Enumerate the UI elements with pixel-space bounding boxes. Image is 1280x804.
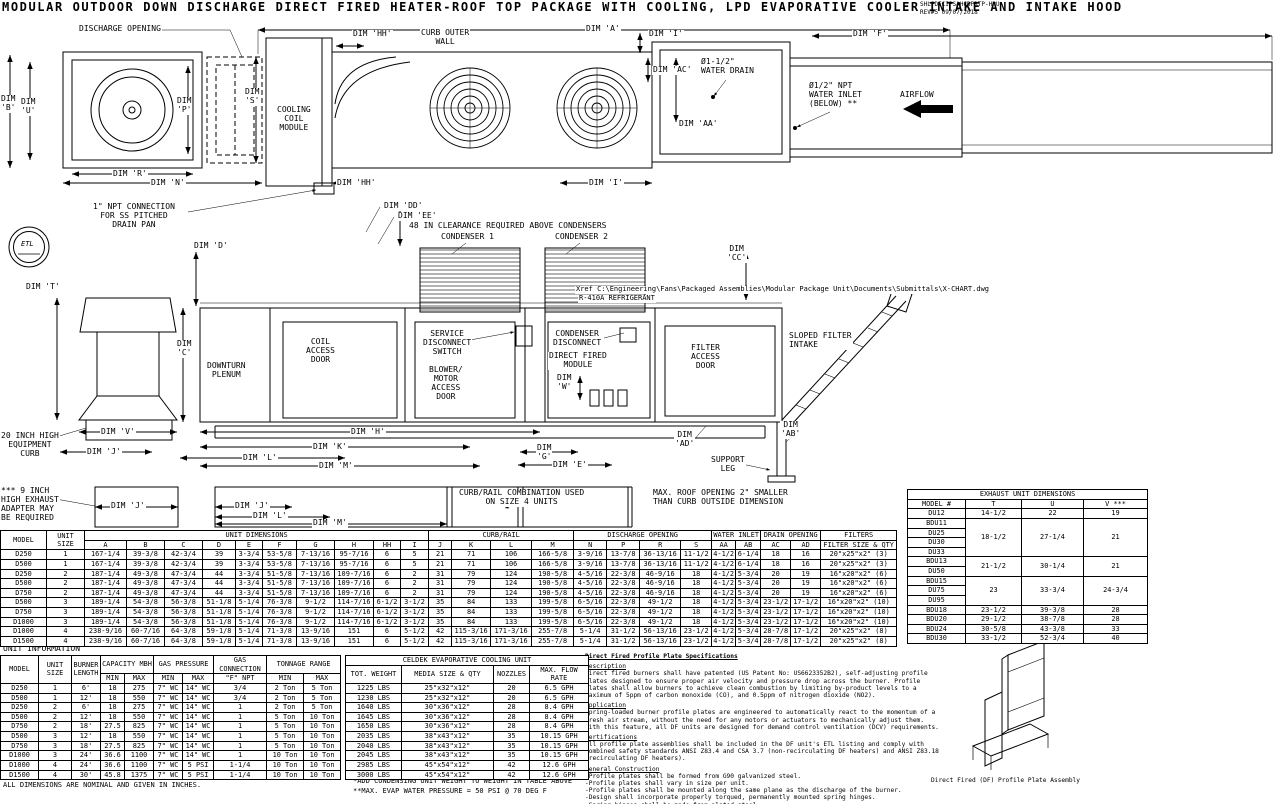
table-group-header-row: MODEL UNIT SIZE UNIT DIMENSIONS CURB/RAI… bbox=[1, 531, 897, 541]
exhaust-adapter-note: *** 9 INCH HIGH EXHAUST ADAPTER MAY BE R… bbox=[0, 487, 60, 523]
table-row: BDU2430-5/843-3/833 bbox=[908, 624, 1148, 634]
unit-information-table: MODEL UNIT SIZE BURNER LENGTH CAPACITY M… bbox=[0, 655, 341, 780]
certifications-heading: Certifications bbox=[585, 734, 939, 741]
dim-r-label: DIM 'R' bbox=[112, 170, 148, 179]
description-body: Direct fired burners shall have patented… bbox=[585, 670, 939, 699]
table-row: D7503189-1/454-3/856-3/851-1/85-1/476-3/… bbox=[1, 608, 897, 618]
table-row: 2035 LBS38"x43"x12"3510.15 GPH bbox=[346, 732, 589, 742]
downturn-plenum-label: DOWNTURN PLENUM bbox=[206, 362, 247, 380]
table-row: D1000424'36.611007" WC5 PSI1-1/410 Ton10… bbox=[1, 760, 341, 770]
dim-ee-label: DIM 'EE' bbox=[397, 212, 438, 221]
dim-e-label: DIM 'E' bbox=[552, 461, 588, 470]
coil-access-door-label: COIL ACCESS DOOR bbox=[305, 338, 336, 365]
dim-s-label: DIM 'S' bbox=[244, 88, 260, 106]
discharge-opening-label: DISCHARGE OPENING bbox=[78, 25, 162, 34]
celdek-cooling-table: CELDEK EVAPORATIVE COOLING UNIT TOT. WEI… bbox=[345, 655, 589, 780]
table-row: D5001167-1/439-3/842-3/4393-3/453-5/87-1… bbox=[1, 559, 897, 569]
dim-a-label: DIM 'A' bbox=[585, 25, 621, 34]
table-row: D750218'27.58257" WC14" WC15 Ton10 Ton bbox=[1, 722, 341, 732]
dim-h-label: DIM 'H' bbox=[350, 428, 386, 437]
support-leg-label: SUPPORT LEG bbox=[710, 456, 746, 474]
table-row: 1650 LBS30"x36"x12"288.4 GPH bbox=[346, 722, 589, 732]
water-inlet-label: Ø1/2" NPT WATER INLET (BELOW) ** bbox=[808, 82, 863, 109]
table-row: D10004238-9/1660-7/1664-3/859-1/85-1/471… bbox=[1, 627, 897, 637]
dim-n-label: DIM 'N' bbox=[150, 179, 186, 188]
table-row: D1500430'45.813757" WC5 PSI1-1/410 Ton10… bbox=[1, 770, 341, 780]
table-row: 2045 LBS38"x43"x12"3510.15 GPH bbox=[346, 751, 589, 761]
curb-rail-note: CURB/RAIL COMBINATION USED ON SIZE 4 UNI… bbox=[458, 489, 585, 507]
dim-hh-top-label: DIM 'HH' bbox=[352, 30, 393, 39]
application-heading: Application bbox=[585, 702, 939, 709]
table-row: D15004238-9/1660-7/1664-3/859-1/85-1/471… bbox=[1, 636, 897, 646]
service-disconnect-label: SERVICE DISCONNECT SWITCH bbox=[422, 330, 472, 357]
table-row: BDU3033-1/252-3/440 bbox=[908, 634, 1148, 644]
revision-block: SHLPDECIPSAHCDPRTP-HPU REV#5 09/07/2018 bbox=[920, 1, 999, 17]
dim-cc-label: DIM 'CC' bbox=[726, 245, 747, 263]
table-row: D25016'182757" WC14" WC3/42 Ton5 Ton bbox=[1, 683, 341, 693]
table-row: 2040 LBS38"x43"x12"3510.15 GPH bbox=[346, 741, 589, 751]
dim-dd-label: DIM 'DD' bbox=[383, 202, 424, 211]
certifications-body: All profile plate assemblies shall be in… bbox=[585, 741, 939, 763]
table-row: D1000324'36.611007" WC14" WC110 Ton10 To… bbox=[1, 751, 341, 761]
table-row: D5002187-1/449-3/847-3/4443-3/451-5/87-1… bbox=[1, 579, 897, 589]
blower-motor-door-label: BLOWER/ MOTOR ACCESS DOOR bbox=[428, 366, 464, 402]
table-row: 1640 LBS30"x36"x12"288.4 GPH bbox=[346, 703, 589, 713]
etl-listed-mark: ETL bbox=[20, 241, 35, 249]
dim-i-bottom-label: DIM 'I' bbox=[588, 179, 624, 188]
dim-k-label: DIM 'K' bbox=[312, 443, 348, 452]
dim-aa-label: DIM 'AA' bbox=[678, 120, 719, 129]
exhaust-table-title: EXHAUST UNIT DIMENSIONS bbox=[908, 490, 1148, 500]
dim-u-label: DIM 'U' bbox=[20, 98, 36, 116]
table-row: 3000 LBS45"x54"x12"4212.6 GPH bbox=[346, 770, 589, 780]
direct-fired-module-label: DIRECT FIRED MODULE bbox=[548, 352, 608, 370]
condenser-disconnect-label: CONDENSER DISCONNECT bbox=[552, 330, 602, 348]
table-row: D500212'185507" WC14" WC15 Ton10 Ton bbox=[1, 712, 341, 722]
table-row: D5003189-1/454-3/856-3/851-1/85-1/476-3/… bbox=[1, 598, 897, 608]
dim-p-label: DIM 'P' bbox=[176, 97, 192, 115]
table-header-row: MODEL # T U V *** bbox=[908, 499, 1148, 509]
dim-b-label: DIM 'B' bbox=[0, 95, 16, 113]
refrigerant-note: R-410A REFRIGERANT bbox=[578, 295, 656, 303]
drawing-canvas: MODULAR OUTDOOR DOWN DISCHARGE DIRECT FI… bbox=[0, 0, 1280, 804]
drawing-number: SHLPDECIPSAHCDPRTP-HPU bbox=[920, 1, 999, 9]
dim-ab-label: DIM 'AB' bbox=[780, 421, 801, 439]
table-row: BDU2029-1/238-7/828 bbox=[908, 615, 1148, 625]
dim-ad-label: DIM 'AD' bbox=[674, 431, 695, 449]
table-title-row: EXHAUST UNIT DIMENSIONS bbox=[908, 490, 1148, 500]
table-row: BDU152333-3/424-3/4 bbox=[908, 576, 1148, 586]
dim-f-label: DIM 'F' bbox=[852, 30, 888, 39]
table-row: D500112'185507" WC14" WC3/42 Ton5 Ton bbox=[1, 693, 341, 703]
table-row: 1230 LBS25"x32"x12"206.5 GPH bbox=[346, 693, 589, 703]
dim-w-label: DIM 'W' bbox=[556, 374, 572, 392]
condenser-2-label: CONDENSER 2 bbox=[554, 233, 609, 242]
clearance-note: 48 IN CLEARANCE REQUIRED ABOVE CONDENSER… bbox=[408, 222, 607, 231]
dim-l-curb-label: DIM 'L' bbox=[252, 512, 288, 521]
exhaust-unit-dimensions-table: EXHAUST UNIT DIMENSIONS MODEL # T U V **… bbox=[907, 489, 1148, 644]
table-row: D500312'185507" WC14" WC15 Ton10 Ton bbox=[1, 732, 341, 742]
dim-v-label: DIM 'V' bbox=[100, 428, 136, 437]
water-drain-label: Ø1-1/2" WATER DRAIN bbox=[700, 58, 755, 76]
dim-j-label: DIM 'J' bbox=[86, 448, 122, 457]
dim-j-curb1-label: DIM 'J' bbox=[110, 502, 146, 511]
table-title-row: CELDEK EVAPORATIVE COOLING UNIT bbox=[346, 656, 589, 666]
description-heading: Description bbox=[585, 663, 939, 670]
table-row: D2502187-1/449-3/847-3/4443-3/451-5/87-1… bbox=[1, 569, 897, 579]
dim-m-curb-label: DIM 'M' bbox=[312, 519, 348, 528]
construction-heading: General Construction bbox=[585, 766, 939, 773]
dim-t-label: DIM 'T' bbox=[25, 283, 61, 292]
airflow-label: AIRFLOW bbox=[899, 91, 935, 100]
dimensions-footnote: ALL DIMENSIONS ARE NOMINAL AND GIVEN IN … bbox=[2, 782, 202, 790]
dim-i-top-label: DIM 'I' bbox=[648, 30, 684, 39]
profile-plate-caption: Direct Fired (DF) Profile Plate Assembly bbox=[930, 778, 1081, 785]
curb-outer-wall-label: CURB OUTER WALL bbox=[420, 29, 470, 47]
dim-hh-bottom-label: DIM 'HH' bbox=[336, 179, 377, 188]
table-header-row: TOT. WEIGHT MEDIA SIZE & QTY NOZZLES MAX… bbox=[346, 665, 589, 683]
table-row: 2985 LBS45"x54"x12"4212.6 GPH bbox=[346, 760, 589, 770]
dim-ac-label: DIM 'AC' bbox=[652, 66, 693, 75]
table-row: D2501167-1/439-3/842-3/4393-3/453-5/87-1… bbox=[1, 550, 897, 560]
roof-opening-note: MAX. ROOF OPENING 2" SMALLER THAN CURB O… bbox=[652, 489, 789, 507]
table-group-header-row: MODEL UNIT SIZE BURNER LENGTH CAPACITY M… bbox=[1, 656, 341, 674]
table-row: D10003189-1/454-3/856-3/851-1/85-1/476-3… bbox=[1, 617, 897, 627]
table-row: D7502187-1/449-3/847-3/4443-3/451-5/87-1… bbox=[1, 588, 897, 598]
celdek-table-title: CELDEK EVAPORATIVE COOLING UNIT bbox=[346, 656, 589, 666]
filter-access-door-label: FILTER ACCESS DOOR bbox=[690, 344, 721, 371]
table-row: BDU1118-1/227-1/421 bbox=[908, 518, 1148, 528]
table-row: 1645 LBS30"x36"x12"288.4 GPH bbox=[346, 712, 589, 722]
cooling-coil-module-label: COOLING COIL MODULE bbox=[276, 106, 312, 133]
revision-date: REV#5 09/07/2018 bbox=[920, 9, 999, 17]
table-row: ABCDEFGHHHIJKLMNPRSAAABACADFILTER SIZE &… bbox=[1, 540, 897, 550]
condenser-1-label: CONDENSER 1 bbox=[440, 233, 495, 242]
dim-g-label: DIM 'G' bbox=[536, 444, 552, 462]
evap-pressure-footnote: **MAX. EVAP WATER PRESSURE = 50 PSI @ 70… bbox=[352, 788, 548, 796]
sloped-filter-intake-label: SLOPED FILTER INTAKE bbox=[788, 332, 853, 350]
dim-c-label: DIM 'C' bbox=[176, 340, 192, 358]
unit-dimensions-table: MODEL UNIT SIZE UNIT DIMENSIONS CURB/RAI… bbox=[0, 530, 897, 647]
table-row: BDU1321-1/230-1/421 bbox=[908, 557, 1148, 567]
dim-l-label: DIM 'L' bbox=[242, 454, 278, 463]
dim-d-label: DIM 'D' bbox=[193, 242, 229, 251]
table-row: 1225 LBS25"x32"x12"206.5 GPH bbox=[346, 683, 589, 693]
dim-m-label: DIM 'M' bbox=[318, 462, 354, 471]
dim-j-curb2-label: DIM 'J' bbox=[234, 502, 270, 511]
table-row: BDU1823-1/239-3/828 bbox=[908, 605, 1148, 615]
specs-title: Direct Fired Profile Plate Specification… bbox=[585, 653, 939, 660]
table-row: DU1214-1/22219 bbox=[908, 509, 1148, 519]
application-body: Spring-loaded burner profile plates are … bbox=[585, 709, 939, 731]
profile-plate-specifications: Direct Fired Profile Plate Specification… bbox=[585, 653, 939, 804]
equipment-curb-note: 20 INCH HIGH EQUIPMENT CURB bbox=[0, 432, 60, 459]
npt-connection-note: 1" NPT CONNECTION FOR SS PITCHED DRAIN P… bbox=[92, 203, 176, 230]
xref-note: Xref C:\Engineering\Fans\Packaged Assemb… bbox=[575, 286, 990, 294]
construction-body: -Profile plates shall be formed from G90… bbox=[585, 773, 939, 804]
table-row: D25026'182757" WC14" WC12 Ton5 Ton bbox=[1, 703, 341, 713]
table-row: D750318'27.58257" WC14" WC15 Ton10 Ton bbox=[1, 741, 341, 751]
